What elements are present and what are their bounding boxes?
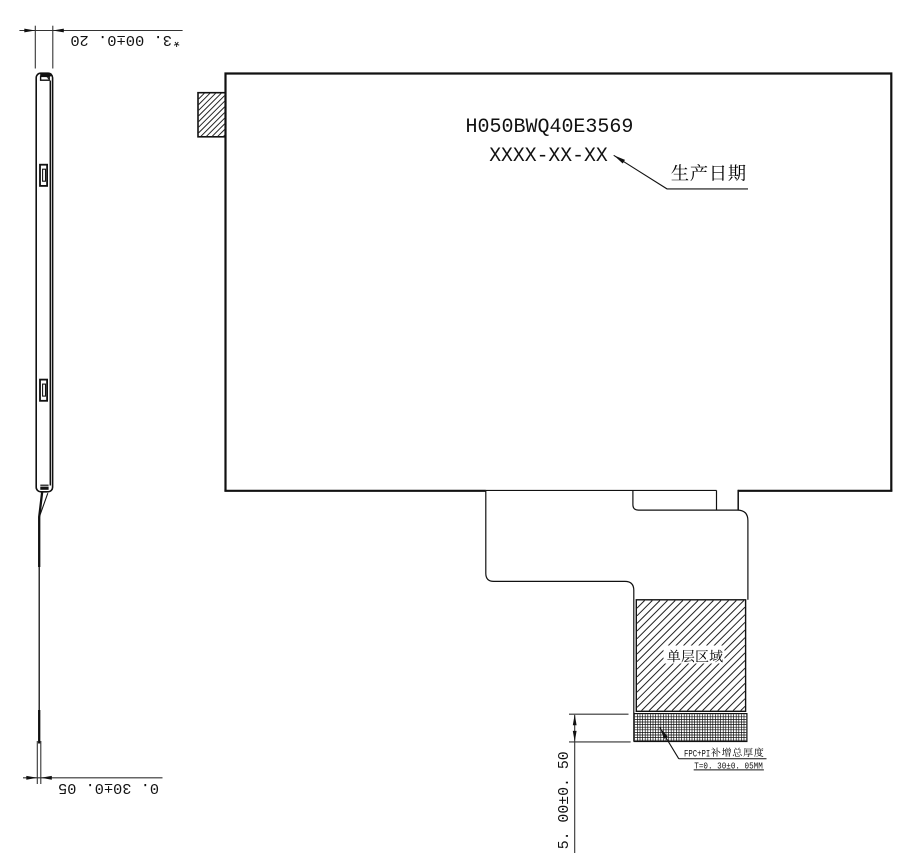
svg-text:H050BWQ40E3569: H050BWQ40E3569 — [466, 116, 634, 139]
svg-text:5. 00±0. 50: 5. 00±0. 50 — [556, 751, 573, 849]
svg-text:*3. 00±0. 20: *3. 00±0. 20 — [70, 31, 181, 48]
svg-text:FPC+PI: FPC+PI — [684, 749, 710, 760]
svg-text:XXXX-XX-XX: XXXX-XX-XX — [489, 145, 608, 168]
svg-text:0. 30±0. 05: 0. 30±0. 05 — [58, 779, 159, 796]
